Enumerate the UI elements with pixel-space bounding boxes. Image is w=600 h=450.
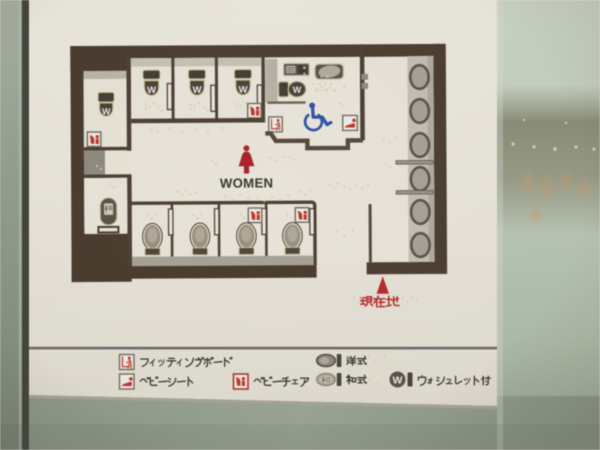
svg-text:W: W (393, 375, 403, 387)
svg-text:W: W (293, 85, 302, 95)
svg-text:W: W (147, 85, 156, 96)
svg-text:W: W (193, 85, 202, 96)
svg-text:W: W (239, 85, 248, 96)
svg-text:WOMEN: WOMEN (220, 175, 274, 190)
svg-text:W: W (102, 106, 111, 116)
